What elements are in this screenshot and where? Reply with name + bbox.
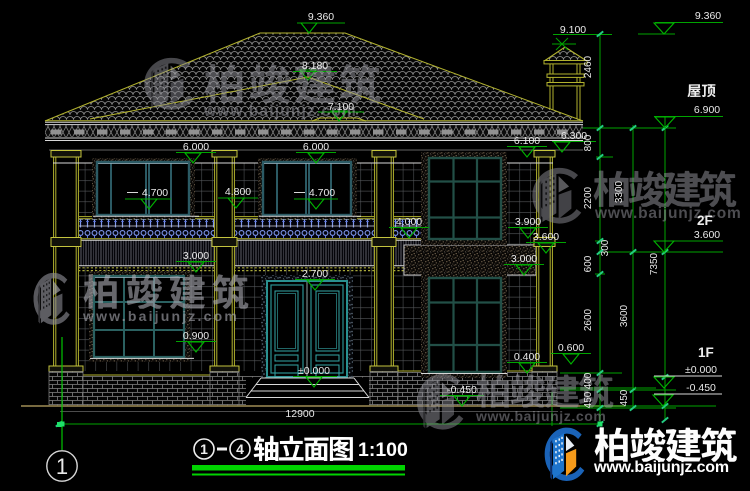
svg-text:4.700: 4.700: [309, 187, 335, 199]
svg-text:1F: 1F: [698, 345, 714, 360]
svg-text:2600: 2600: [583, 308, 594, 331]
svg-text:4.700: 4.700: [142, 187, 168, 199]
svg-text:4.000: 4.000: [396, 216, 422, 228]
svg-text:7350: 7350: [649, 252, 660, 275]
svg-text:-0.450: -0.450: [686, 382, 716, 394]
svg-text:www.baijunjz.com: www.baijunjz.com: [594, 205, 742, 222]
svg-text:6.000: 6.000: [183, 141, 209, 153]
svg-text:9.100: 9.100: [560, 24, 586, 36]
svg-text:±0.000: ±0.000: [685, 364, 717, 376]
svg-text:12900: 12900: [285, 408, 314, 420]
svg-text:4.800: 4.800: [225, 186, 251, 198]
svg-text:-0.450: -0.450: [447, 384, 477, 396]
svg-text:9.360: 9.360: [308, 11, 334, 23]
svg-text:8.180: 8.180: [302, 60, 328, 72]
svg-text:3300: 3300: [614, 180, 625, 203]
svg-text:7.100: 7.100: [328, 101, 354, 113]
svg-text:600: 600: [583, 255, 594, 272]
svg-text:3.000: 3.000: [511, 253, 537, 265]
svg-text:3.600: 3.600: [533, 231, 559, 243]
svg-text:1: 1: [200, 441, 208, 457]
svg-text:1: 1: [56, 454, 68, 479]
svg-text:3600: 3600: [619, 304, 630, 327]
svg-text:2.700: 2.700: [302, 268, 328, 280]
svg-text:3.000: 3.000: [183, 250, 209, 262]
svg-text:2F: 2F: [697, 213, 713, 228]
svg-text:0.600: 0.600: [558, 342, 584, 354]
svg-text:3.600: 3.600: [694, 229, 720, 241]
svg-text:2200: 2200: [583, 186, 594, 209]
svg-text:800: 800: [583, 134, 594, 151]
svg-text:300: 300: [600, 239, 611, 256]
svg-text:400: 400: [583, 372, 594, 389]
svg-text:6.000: 6.000: [303, 141, 329, 153]
svg-text:6.100: 6.100: [514, 135, 540, 147]
svg-text:0.900: 0.900: [183, 330, 209, 342]
svg-text:6.900: 6.900: [694, 104, 720, 116]
svg-text:2460: 2460: [583, 55, 594, 78]
svg-text:3.900: 3.900: [515, 216, 541, 228]
svg-text:4: 4: [236, 441, 244, 457]
svg-text:1:100: 1:100: [358, 439, 408, 461]
svg-text:±0.000: ±0.000: [298, 365, 330, 377]
svg-text:450: 450: [619, 389, 630, 406]
svg-text:www.baijunjz.com: www.baijunjz.com: [82, 308, 239, 324]
svg-text:9.360: 9.360: [695, 10, 721, 22]
svg-text:0.400: 0.400: [514, 351, 540, 363]
svg-text:450: 450: [583, 391, 594, 408]
svg-text:www.baijunjz.com: www.baijunjz.com: [593, 459, 729, 476]
svg-text:www.baijunjz.com: www.baijunjz.com: [475, 408, 606, 424]
